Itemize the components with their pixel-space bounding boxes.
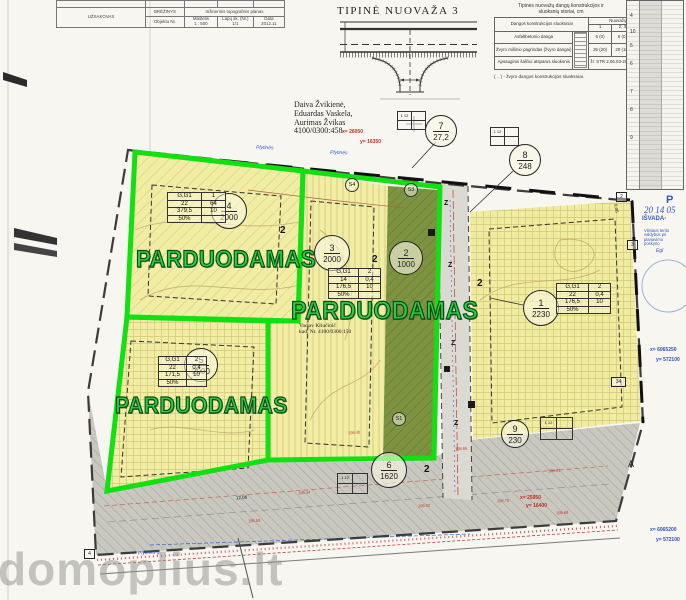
scanned-site-plan: UŽSAKOVAS BRĖŽINYS Inžinerinis topografi…	[0, 0, 686, 600]
drawing-label: BRĖŽINYS	[146, 8, 185, 17]
plot-circle-3: 32000	[314, 235, 350, 271]
red-coordinate-x: x= 26050	[342, 130, 363, 136]
plot-circle-8: 8248	[509, 144, 541, 176]
elevation-mark: 198.58	[248, 518, 261, 524]
approval-stamp: P 20 14 05 IŠVADA- Vilniaus terito valdy…	[640, 194, 686, 255]
client-label: UŽSAKOVAS	[57, 8, 146, 28]
for-sale-label: PARDUODAMAS	[136, 246, 316, 274]
date-value: 2012.11	[261, 21, 277, 26]
elevation-mark: 198.44	[298, 490, 311, 496]
section-label: A	[628, 460, 634, 470]
drawing-title: Inžinerinis topografinis planas	[184, 8, 284, 17]
layer-diagram-icon	[574, 32, 587, 68]
elevation-mark: 198.81	[548, 468, 561, 474]
for-sale-label: PARDUODAMAS	[115, 392, 288, 419]
for-sale-label: PARDUODAMAS	[291, 297, 478, 326]
construction-table: Tipinės nuovažų dangų konstrukcijos ir s…	[494, 4, 628, 79]
z-marker: Z	[444, 200, 448, 207]
elevation-mark: 198.75	[497, 498, 510, 504]
plot-4-data-table: G,G11 2264 379,510 50%	[167, 192, 226, 223]
z-marker: Z	[454, 420, 458, 427]
coordinate-table: 4 10 5 6 7 8 9	[626, 0, 684, 190]
boxed-point-number: 3	[627, 240, 638, 250]
sheets-value: 1/1	[232, 21, 238, 26]
z-marker: Z	[451, 340, 455, 347]
boxed-point-number: 34	[611, 377, 626, 387]
street-name: Plytinės	[330, 151, 348, 157]
row2-label: Žvyro mišinio pagrindas (žvyro dangai)	[495, 44, 573, 57]
driveway-detail-title: TIPINĖ NUOVAŽA 3	[337, 5, 459, 17]
plot-circle-1: 12230	[523, 290, 559, 326]
row3-label: Apsauginis šalčiui atsparus sluoksnis	[495, 57, 573, 70]
scale-value: 1 : 500	[194, 21, 207, 26]
blue-coordinate-y: y= 572100	[656, 538, 680, 544]
point-number: 2	[477, 278, 483, 289]
z-marker: Z	[448, 262, 452, 269]
row1-label: Asfaltbetonio danga	[495, 31, 573, 44]
object-no-label: Objekto Nr.	[146, 17, 185, 28]
plot-5-data-table: G,G12 220,4 171,510 50%	[158, 356, 207, 387]
layers-header: Dangos konstrukcijos sluoksniai	[495, 18, 589, 32]
plot-3-data-table: G,G12 140,4 176,510 50%	[328, 268, 381, 299]
plot-circle-6: 61620	[371, 452, 407, 488]
point-number: 2	[280, 225, 286, 236]
boxed-point-number: 2	[616, 192, 627, 202]
plot-4-area	[127, 152, 303, 321]
grid-box: 1 12	[337, 473, 368, 494]
plot-1-data-table: G,G12 220,4 176,510 50%	[556, 283, 611, 314]
grid-box: 1 12	[397, 111, 426, 130]
elevation-mark: 198.65	[455, 446, 468, 452]
red-coordinate-y: y= 16400	[526, 504, 547, 510]
dimension-label: 12,06	[236, 496, 248, 502]
s-point-label: S3	[404, 183, 418, 197]
plot-circle-9: 9230	[501, 420, 529, 448]
plot-circle-7: 727,2	[425, 115, 457, 147]
watermark: domoplius.lt	[0, 542, 283, 596]
point-number: 2	[424, 464, 430, 475]
blue-coordinate-x: x= 6065250	[650, 348, 677, 354]
street-name: Plytinės	[256, 146, 274, 152]
s-point-label: S1	[392, 412, 406, 426]
elevation-mark: 198.40	[348, 430, 361, 436]
plot-circle-2: 21000	[389, 241, 423, 275]
red-coordinate-y: y= 16350	[360, 140, 381, 146]
title-block: UŽSAKOVAS BRĖŽINYS Inžinerinis topografi…	[56, 0, 285, 28]
grid-box: 1 12	[490, 127, 519, 146]
grid-box: 1 12	[540, 417, 573, 440]
table-footnote: ( .. ) - žvyro dangos konstrukcijos sluo…	[494, 74, 628, 79]
blue-coordinate-x: x= 6065200	[650, 528, 677, 534]
elevation-mark: 199.02	[418, 503, 431, 509]
red-coordinate-x: x= 25950	[520, 496, 541, 502]
dimension-label: 5,06	[612, 204, 619, 214]
elevation-mark: 198.68	[556, 510, 569, 516]
point-number: 2	[372, 254, 378, 265]
s-point-label: S4	[345, 178, 359, 192]
blue-coordinate-y: y= 572100	[656, 358, 680, 364]
